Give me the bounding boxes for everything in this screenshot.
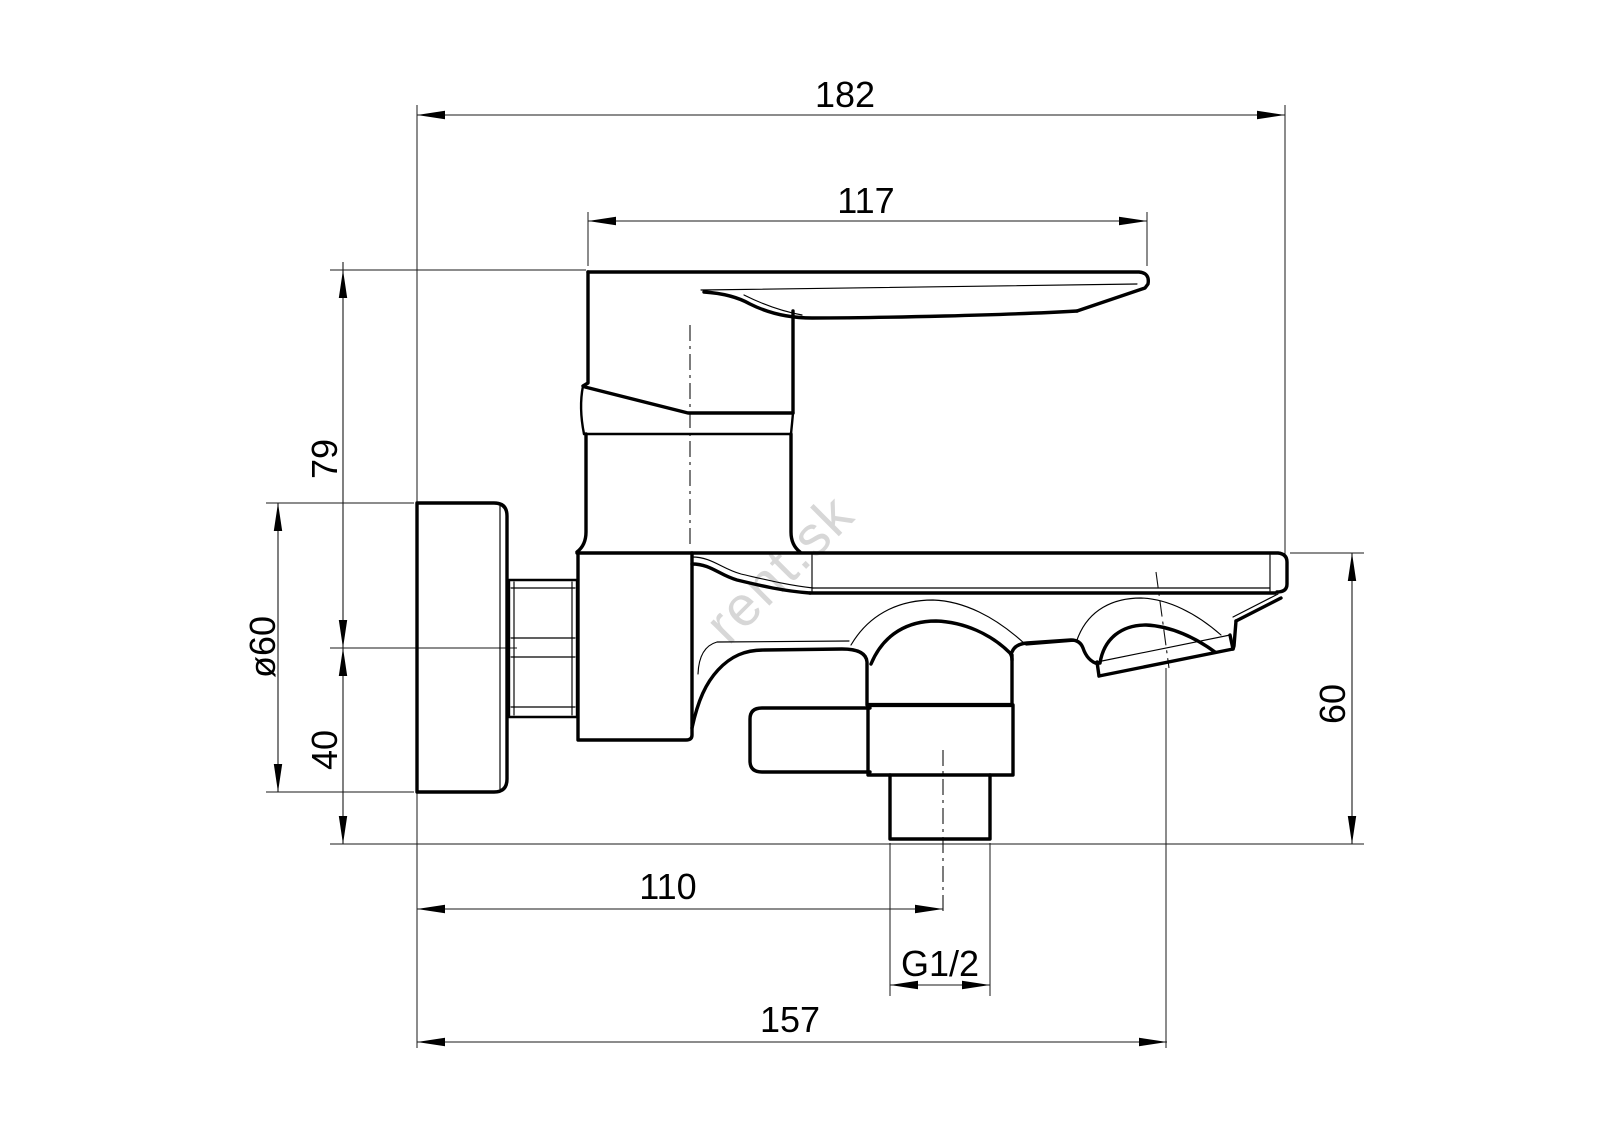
arrowhead bbox=[588, 217, 616, 225]
body-column bbox=[578, 553, 692, 740]
arrowhead bbox=[274, 503, 282, 531]
arch-3-inner bbox=[1077, 598, 1221, 640]
arrowhead bbox=[417, 905, 445, 913]
dim-label-g12: G1/2 bbox=[901, 943, 979, 984]
arch-2 bbox=[871, 621, 1012, 664]
dim-label-157: 157 bbox=[760, 999, 820, 1040]
faucet-outline bbox=[417, 272, 1287, 839]
aerator-left-edge bbox=[1097, 662, 1099, 676]
base-left-edge bbox=[583, 272, 588, 386]
neck-left-curve bbox=[581, 386, 584, 434]
outlet-pipe bbox=[890, 775, 990, 839]
dim-label-117: 117 bbox=[837, 180, 894, 221]
arrowhead bbox=[1139, 1038, 1167, 1046]
diverter-knob bbox=[750, 708, 870, 772]
cylinder-left bbox=[577, 434, 586, 552]
arrowhead bbox=[339, 620, 347, 648]
arrowhead bbox=[274, 764, 282, 792]
tip-slant-inner bbox=[1233, 594, 1278, 617]
arrowhead bbox=[339, 816, 347, 844]
dim-label-79: 79 bbox=[304, 439, 345, 479]
arch-1 bbox=[692, 649, 867, 728]
watermark-text: rent.sk bbox=[693, 482, 866, 655]
arrowhead bbox=[915, 905, 943, 913]
hex-nut bbox=[509, 580, 577, 717]
arch-saddle bbox=[1012, 640, 1098, 664]
aerator-right-edge bbox=[1230, 635, 1233, 649]
arrowhead bbox=[417, 1038, 445, 1046]
arrowhead bbox=[417, 111, 445, 119]
lever-underside bbox=[704, 292, 1077, 318]
spout-deck bbox=[577, 553, 1287, 593]
drawing-svg: rent.sk bbox=[0, 0, 1600, 1131]
diverter-valve bbox=[750, 705, 1013, 775]
base-bottom-slant bbox=[585, 387, 793, 413]
watermark: rent.sk bbox=[693, 482, 866, 655]
dim-label-110: 110 bbox=[639, 866, 696, 907]
arrowhead bbox=[339, 270, 347, 298]
arrowhead bbox=[1119, 217, 1147, 225]
dim-label-60: 60 bbox=[1312, 684, 1353, 724]
arrowhead bbox=[339, 648, 347, 676]
dim-label-182: 182 bbox=[815, 74, 875, 115]
dim-label-40: 40 bbox=[304, 730, 345, 770]
arrowhead bbox=[1348, 553, 1356, 581]
valve-body bbox=[868, 705, 1013, 775]
spout-axis-centerline bbox=[1156, 572, 1169, 668]
technical-drawing-canvas: rent.sk bbox=[0, 0, 1600, 1131]
lever-handle bbox=[588, 272, 1148, 318]
hex-nut-body bbox=[509, 580, 577, 717]
lever-inner-edge bbox=[701, 284, 1137, 290]
dimension-lines bbox=[274, 111, 1356, 1046]
lever-top bbox=[588, 272, 1148, 311]
dim-label-d60: ø60 bbox=[242, 616, 283, 678]
tip-slant bbox=[1236, 598, 1281, 621]
arrowhead bbox=[1348, 816, 1356, 844]
handle-base bbox=[577, 272, 800, 552]
arrowhead bbox=[1257, 111, 1285, 119]
deck-top bbox=[577, 553, 1287, 592]
neck-right-curve bbox=[791, 413, 793, 434]
